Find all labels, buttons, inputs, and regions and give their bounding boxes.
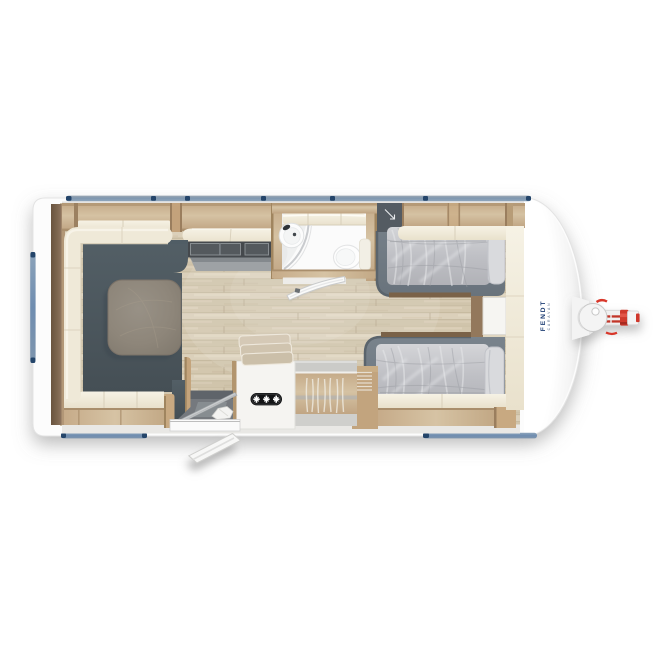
svg-text:CARAVAN: CARAVAN [547, 302, 551, 331]
svg-text:FENDT: FENDT [540, 300, 547, 332]
